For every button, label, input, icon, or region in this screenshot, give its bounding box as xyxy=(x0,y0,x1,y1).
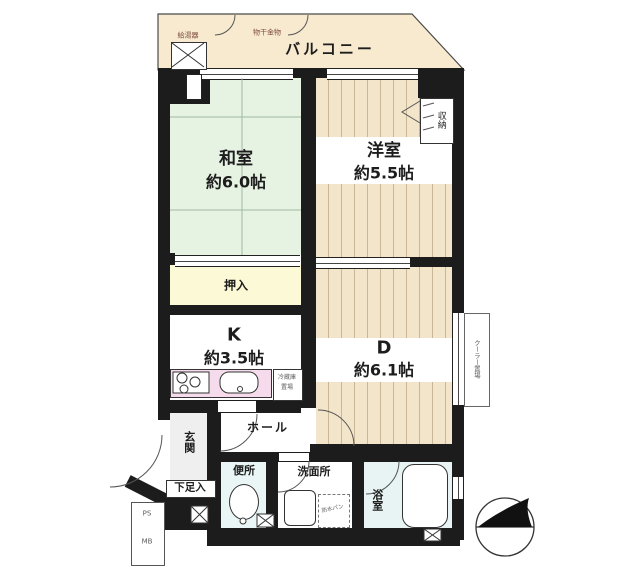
balcony-door-arc-1 xyxy=(215,15,235,35)
kitchen-size: 約3.5帖 xyxy=(204,351,264,368)
dining-name: D xyxy=(377,340,392,359)
hall-label: ホール xyxy=(247,422,289,435)
fridge-space-label-2: 置場 xyxy=(281,385,293,391)
senmenjo-label: 洗面所 xyxy=(298,466,331,478)
wall-benjo-senmenjo xyxy=(266,462,278,530)
fridge-space-label-1: 冷蔵庫 xyxy=(278,375,296,381)
doorway-hall-kitchen xyxy=(218,401,256,412)
youshitsu-balcony-window xyxy=(327,68,418,80)
washitsu-size: 約6.0帖 xyxy=(206,175,266,192)
washbasin xyxy=(284,490,316,526)
washitsu-name: 和室 xyxy=(219,151,253,169)
wall-bottom xyxy=(207,528,460,546)
washitsu-balcony-window xyxy=(200,68,293,80)
kitchen-name: K xyxy=(227,327,241,346)
balcony-door-arc-2 xyxy=(288,15,308,35)
bathroom-window xyxy=(452,477,464,499)
laundry-hook-label: 物干金物 xyxy=(253,29,281,36)
mb-label: MB xyxy=(142,538,153,545)
floor-plan: バルコニー 給湯器 物干金物 和室 約6.0帖 洋室 約5.5帖 収納 押入 K… xyxy=(0,0,640,569)
youshitsu-name: 洋室 xyxy=(367,143,401,161)
wall-senmenjo-yokushitsu xyxy=(352,452,364,530)
wall-washitsu-bottom-left xyxy=(158,253,175,265)
youshitsu-size: 約5.5帖 xyxy=(354,166,414,183)
benjo-label: 便所 xyxy=(233,465,255,477)
gesokuire-label: 下足入 xyxy=(174,482,206,493)
cooler-space-label: クーラー置場 xyxy=(473,340,480,379)
washitsu-oshiire-fusuma xyxy=(175,255,300,267)
wall-left xyxy=(158,68,170,420)
wall-hall-bottom xyxy=(221,452,455,462)
yokushitsu-label: 浴室 xyxy=(371,489,383,511)
doorway-senmenjo xyxy=(279,453,309,461)
kitchen-counter xyxy=(170,369,272,398)
wall-shuno-top xyxy=(418,78,452,98)
oshiire-label: 押入 xyxy=(224,280,248,293)
wall-oshiire-bottom xyxy=(158,305,316,315)
shuno-label: 収納 xyxy=(435,111,444,129)
balcony-label: バルコニー xyxy=(285,42,375,58)
youshitsu-dining-sliding-door xyxy=(316,257,410,269)
wall-youshitsu-dining xyxy=(410,257,452,267)
wall-center-vertical xyxy=(301,68,316,408)
water-heater-label: 給湯器 xyxy=(178,32,199,39)
ps-label: PS xyxy=(143,510,152,517)
doorway-hall-dining xyxy=(301,408,316,444)
dining-size: 約6.1帖 xyxy=(354,363,414,380)
north-arrow-icon xyxy=(476,498,534,556)
toilet-bowl xyxy=(229,484,259,520)
genkan-label: 玄関 xyxy=(183,431,195,453)
bathtub xyxy=(402,464,448,528)
corner-window-slot xyxy=(186,74,202,100)
water-heater-box xyxy=(171,42,207,70)
